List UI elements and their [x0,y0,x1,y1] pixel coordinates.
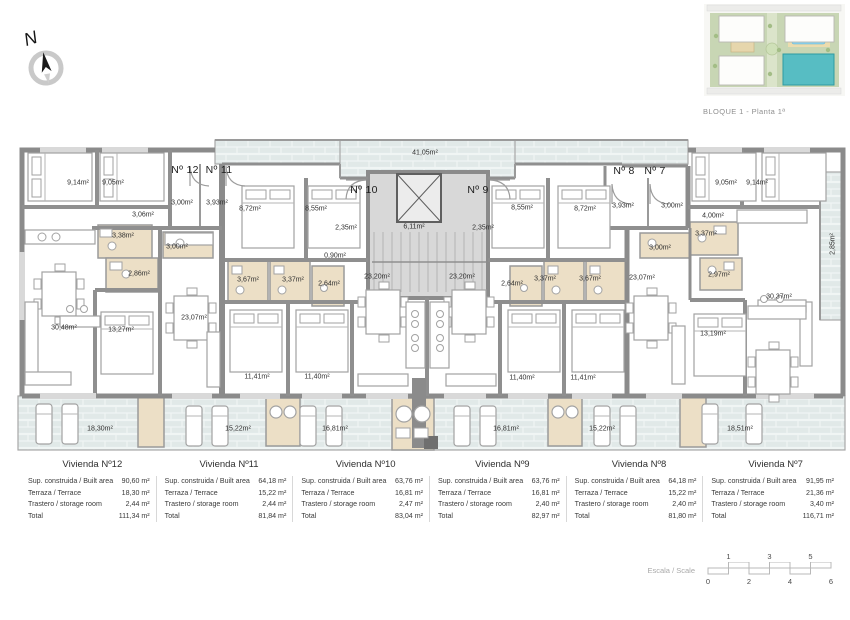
row-value: 116,71 m² [803,511,834,523]
stair-core [368,172,488,298]
row-value: 15,22 m² [668,488,696,500]
unit-summary-rows: Sup. construida / Built area64,18 m²Terr… [165,476,294,522]
scale-number: 5 [808,552,812,561]
scale-number: 6 [829,577,833,586]
unit-summary-row: Terraza / Terrace16,81 m² [301,488,423,500]
unit-summary-row: Sup. construida / Built area63,76 m² [301,476,423,488]
unit-summary-row: Sup. construida / Built area91,95 m² [711,476,834,488]
row-value: 91,95 m² [806,476,834,488]
unit-summary-row: Terraza / Terrace15,22 m² [165,488,287,500]
scale-graphic: 135 0246 [707,552,833,588]
row-value: 2,44 m² [262,499,286,511]
row-value: 82,97 m² [532,511,560,523]
row-value: 81,80 m² [668,511,696,523]
unit-summary-row: Total116,71 m² [711,511,834,523]
unit-summary-row: Total81,80 m² [575,511,697,523]
elevator-icon [397,174,441,222]
unit-summary-row: Terraza / Terrace21,36 m² [711,488,834,500]
row-value: 18,30 m² [122,488,150,500]
unit-summary-row: Terraza / Terrace18,30 m² [28,488,150,500]
row-value: 81,84 m² [258,511,286,523]
row-label: Trastero / storage room [575,499,649,511]
unit-summary-rows: Sup. construida / Built area91,95 m²Terr… [711,476,840,522]
unit-summary-title: Vivienda Nº10 [301,459,430,470]
unit-summary-title: Vivienda Nº12 [28,459,157,470]
row-value: 16,81 m² [395,488,423,500]
scale-bar: Escala / Scale 135 0246 [545,552,833,588]
unit-summary-table: Vivienda Nº11Sup. construida / Built are… [161,455,298,522]
row-label: Total [28,511,43,523]
row-label: Sup. construida / Built area [575,476,660,488]
row-label: Sup. construida / Built area [711,476,796,488]
row-label: Total [301,511,316,523]
row-label: Sup. construida / Built area [165,476,250,488]
row-label: Terraza / Terrace [711,488,764,500]
scale-number: 2 [747,577,751,586]
unit-summary-rows: Sup. construida / Built area90,60 m²Terr… [28,476,157,522]
row-value: 2,47 m² [399,499,423,511]
row-value: 3,40 m² [810,499,834,511]
row-value: 63,76 m² [395,476,423,488]
unit-summary-row: Trastero / storage room2,47 m² [301,499,423,511]
unit-summary-rows: Sup. construida / Built area63,76 m²Terr… [301,476,430,522]
row-value: 2,40 m² [536,499,560,511]
unit-summary-table: Vivienda Nº9Sup. construida / Built area… [434,455,571,522]
unit-summary-row: Terraza / Terrace15,22 m² [575,488,697,500]
unit-summary-row: Total82,97 m² [438,511,560,523]
unit-summary-row: Sup. construida / Built area64,18 m² [165,476,287,488]
unit-summary-row: Total111,34 m² [28,511,150,523]
row-value: 15,22 m² [258,488,286,500]
scale-number: 1 [726,552,730,561]
row-label: Trastero / storage room [28,499,102,511]
row-value: 2,44 m² [126,499,150,511]
row-label: Terraza / Terrace [575,488,628,500]
unit-summary-rows: Sup. construida / Built area64,18 m²Terr… [575,476,704,522]
row-value: 64,18 m² [668,476,696,488]
unit-summary-row: Sup. construida / Built area64,18 m² [575,476,697,488]
row-label: Total [575,511,590,523]
unit-summary-table: Vivienda Nº8Sup. construida / Built area… [571,455,708,522]
floor-plan-svg [0,0,850,460]
unit-summary-row: Total81,84 m² [165,511,287,523]
row-label: Terraza / Terrace [28,488,81,500]
row-label: Trastero / storage room [438,499,512,511]
row-value: 2,40 m² [672,499,696,511]
unit-summary-row: Total83,04 m² [301,511,423,523]
row-label: Total [165,511,180,523]
scale-bar-icon [707,562,833,576]
unit-summary-row: Trastero / storage room3,40 m² [711,499,834,511]
unit-summary-row: Sup. construida / Built area90,60 m² [28,476,150,488]
scale-number: 3 [767,552,771,561]
unit-summary-table: Vivienda Nº12Sup. construida / Built are… [24,455,161,522]
row-label: Total [711,511,726,523]
unit-summary-title: Vivienda Nº9 [438,459,567,470]
unit-summary-tables: Vivienda Nº12Sup. construida / Built are… [24,455,844,522]
unit-summary-table: Vivienda Nº10Sup. construida / Built are… [297,455,434,522]
scale-label: Escala / Scale [545,566,695,575]
row-value: 21,36 m² [806,488,834,500]
row-label: Sup. construida / Built area [301,476,386,488]
row-value: 111,34 m² [119,511,150,523]
row-label: Terraza / Terrace [438,488,491,500]
unit-summary-title: Vivienda Nº7 [711,459,840,470]
unit-summary-row: Trastero / storage room2,40 m² [575,499,697,511]
row-label: Trastero / storage room [165,499,239,511]
row-value: 83,04 m² [395,511,423,523]
row-value: 63,76 m² [532,476,560,488]
row-label: Trastero / storage room [301,499,375,511]
floor-plan-page: N [0,0,850,620]
row-label: Total [438,511,453,523]
unit-summary-title: Vivienda Nº11 [165,459,294,470]
unit-summary-row: Trastero / storage room2,44 m² [28,499,150,511]
unit-summary-title: Vivienda Nº8 [575,459,704,470]
row-value: 16,81 m² [532,488,560,500]
row-label: Trastero / storage room [711,499,785,511]
scale-number: 4 [788,577,792,586]
row-value: 64,18 m² [258,476,286,488]
unit-summary-row: Trastero / storage room2,44 m² [165,499,287,511]
row-value: 90,60 m² [122,476,150,488]
row-label: Sup. construida / Built area [28,476,113,488]
scale-number: 0 [706,577,710,586]
row-label: Sup. construida / Built area [438,476,523,488]
row-label: Terraza / Terrace [165,488,218,500]
row-label: Terraza / Terrace [301,488,354,500]
unit-summary-row: Trastero / storage room2,40 m² [438,499,560,511]
unit-summary-row: Terraza / Terrace16,81 m² [438,488,560,500]
unit-summary-table: Vivienda Nº7Sup. construida / Built area… [707,455,844,522]
unit-summary-row: Sup. construida / Built area63,76 m² [438,476,560,488]
unit-summary-rows: Sup. construida / Built area63,76 m²Terr… [438,476,567,522]
floor-plan: Nº 12Nº 11Nº 10Nº 9Nº 8Nº 741,05m²9,14m²… [0,0,850,460]
